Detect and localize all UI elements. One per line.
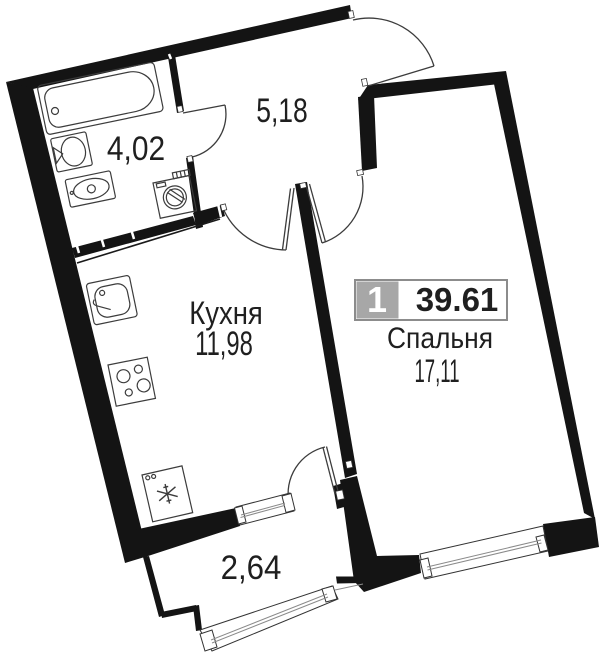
svg-text:11,98: 11,98 [195,325,253,363]
svg-text:5,18: 5,18 [256,92,308,130]
svg-text:2,64: 2,64 [221,548,282,587]
svg-text:4,02: 4,02 [107,129,165,167]
svg-text:Спальня: Спальня [387,320,493,354]
svg-text:1: 1 [367,279,387,320]
svg-text:39.61: 39.61 [416,281,499,318]
svg-text:17,11: 17,11 [414,353,459,390]
